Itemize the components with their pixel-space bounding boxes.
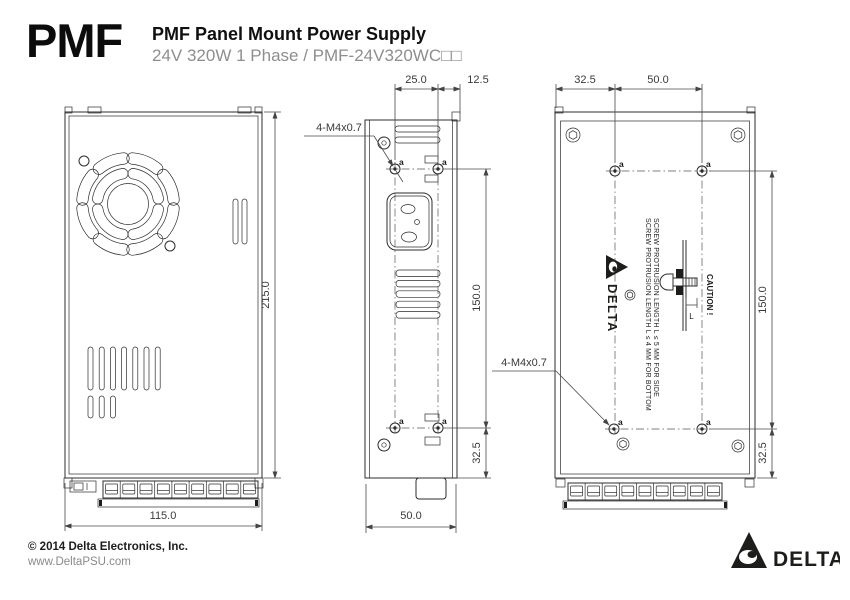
dim-back-side-offset: 32.5: [574, 74, 595, 86]
delta-brand-logo: DELTA: [710, 527, 840, 580]
dim-back-hole-bottom: 32.5: [757, 442, 769, 463]
front-view: 115.0 215.0: [64, 107, 281, 531]
side-hole-bottom: [378, 439, 390, 451]
front-enclosure-outline: [65, 112, 262, 478]
side-cutout: [425, 437, 440, 445]
front-vent-row-short: [88, 396, 115, 418]
delta-wordmark: DELTA: [773, 548, 840, 571]
inlet-pin-hole: [401, 205, 415, 214]
back-terminal-strip: [563, 501, 727, 509]
dim-side-hole-bottom: 32.5: [471, 442, 483, 463]
back-view: a a a a DELTA SCREW PROTRUSION LENGTH L …: [492, 74, 777, 509]
side-bottom-tab: [416, 478, 446, 499]
screw-protrusion-note-bottom: SCREW PROTRUSION LENGTH L ≤ 4 MM FOR BOT…: [644, 218, 651, 411]
fan-screw-hole: [79, 156, 89, 166]
terminal-strip-endcap: [255, 500, 258, 506]
front-enclosure-inner: [69, 116, 258, 474]
side-cutout: [425, 175, 438, 182]
caution-label: CAUTION !: [705, 274, 714, 315]
dim-front-height: 215.0: [260, 281, 272, 309]
hole-tag: a: [706, 159, 711, 169]
website-text: www.DeltaPSU.com: [28, 556, 131, 568]
inlet-pin-hole: [415, 220, 420, 225]
front-terminal-strip: [98, 499, 259, 507]
delta-logo-rotated: DELTA: [605, 255, 628, 333]
side-view: a a a a 4-M4x0.7 25.0 12.5 150.0 32.5: [304, 74, 491, 533]
screw-length-diagram: L: [660, 240, 697, 331]
fan-center-circle: [108, 184, 149, 225]
copyright-text: © 2014 Delta Electronics, Inc.: [28, 541, 188, 553]
hole-tag: a: [619, 159, 624, 169]
dim-side-depth: 50.0: [400, 510, 421, 522]
side-cutout: [425, 156, 438, 163]
dim-side-hole-span: 150.0: [471, 284, 483, 312]
front-dimensions: 115.0 215.0: [65, 112, 281, 531]
front-terminal-block: [103, 481, 258, 498]
side-cutout: [425, 414, 439, 421]
dim-back-hole-pitch: 50.0: [647, 74, 668, 86]
front-switch: [70, 481, 96, 492]
dim-front-width: 115.0: [150, 510, 177, 522]
thread-callout-back: 4-M4x0.7: [501, 357, 547, 369]
side-top-vents: [395, 126, 440, 143]
ac-inlet: [387, 193, 432, 250]
fan-screw-hole: [165, 241, 175, 251]
dim-side-hole-pitch: 25.0: [405, 74, 426, 86]
back-bottom-corner-left: [556, 479, 565, 487]
delta-triangle-icon: [731, 532, 767, 568]
dim-back-hole-span: 150.0: [757, 286, 769, 314]
fan-grille: [77, 153, 180, 256]
screw-protrusion-note-side: SCREW PROTRUSION LENGTH L ≤ 5 MM FOR SID…: [652, 218, 659, 397]
side-hole-top: [378, 137, 390, 149]
side-mounting-holes: [390, 164, 443, 433]
hole-tag: a: [442, 416, 447, 426]
thread-callout-side: 4-M4x0.7: [316, 122, 362, 134]
back-bottom-corner-right: [745, 479, 754, 487]
front-vent-row-long: [88, 347, 160, 390]
hole-tag: a: [442, 157, 447, 167]
hole-tag: a: [399, 157, 404, 167]
technical-drawing: 115.0 215.0: [0, 0, 850, 600]
hole-tag: a: [399, 416, 404, 426]
side-hole-top-inner: [382, 141, 386, 145]
terminal-strip-endcap: [564, 502, 567, 508]
dim-side-hole-edge: 12.5: [467, 74, 488, 86]
side-vent-row: [396, 270, 440, 318]
screw-length-label: L: [689, 312, 694, 321]
terminal-strip-endcap: [99, 500, 102, 506]
hole-tag: a: [618, 417, 623, 427]
delta-wordmark-rotated: DELTA: [605, 284, 620, 333]
hole-tag: a: [706, 417, 711, 427]
front-side-vents: [233, 199, 247, 244]
back-dimensions: 32.5 50.0 150.0 32.5: [556, 74, 777, 478]
side-hole-bottom-inner: [382, 443, 386, 447]
back-terminal-block: [568, 483, 722, 500]
terminal-strip-endcap: [724, 502, 727, 508]
inlet-pin-hole: [402, 232, 417, 242]
